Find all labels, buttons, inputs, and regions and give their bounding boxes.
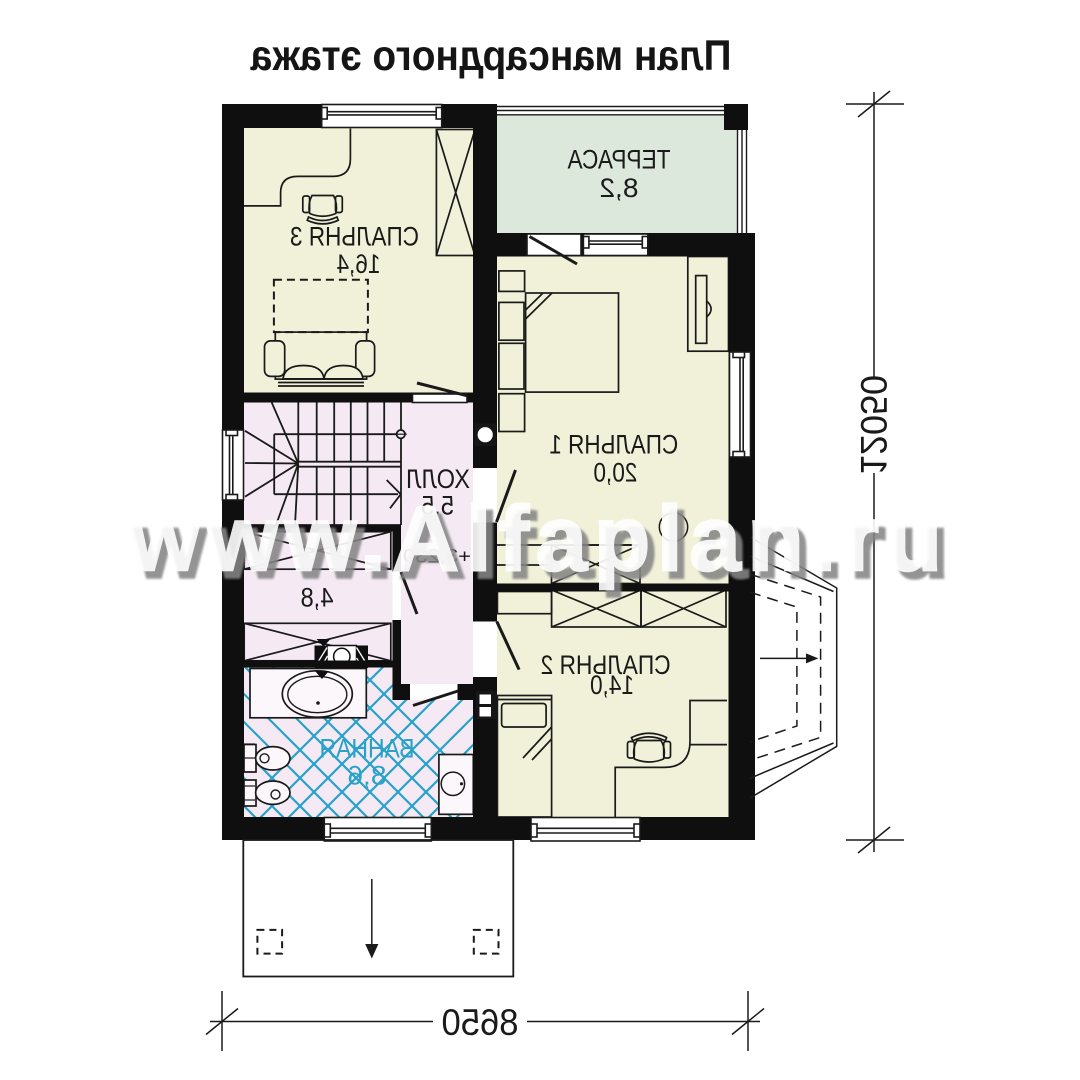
svg-text:8,6: 8,6 [348, 760, 387, 790]
svg-text:16,4: 16,4 [337, 249, 381, 279]
svg-text:8650: 8650 [442, 1002, 519, 1043]
svg-text:План мансардного этажа: План мансардного этажа [250, 32, 732, 80]
svg-text:ВАННАЯ: ВАННАЯ [320, 733, 415, 763]
svg-text:СПАЛЬНЯ 3: СПАЛЬНЯ 3 [290, 221, 419, 251]
svg-text:ТЕРРАСА: ТЕРРАСА [567, 145, 670, 175]
svg-text:www.Alfaplan.ru: www.Alfaplan.ru [127, 488, 949, 590]
svg-text:14,0: 14,0 [590, 670, 634, 700]
svg-text:8,2: 8,2 [600, 173, 639, 203]
svg-text:12050: 12050 [853, 375, 894, 475]
svg-text:20,0: 20,0 [593, 458, 637, 488]
svg-text:СПАЛЬНЯ 1: СПАЛЬНЯ 1 [549, 429, 678, 459]
